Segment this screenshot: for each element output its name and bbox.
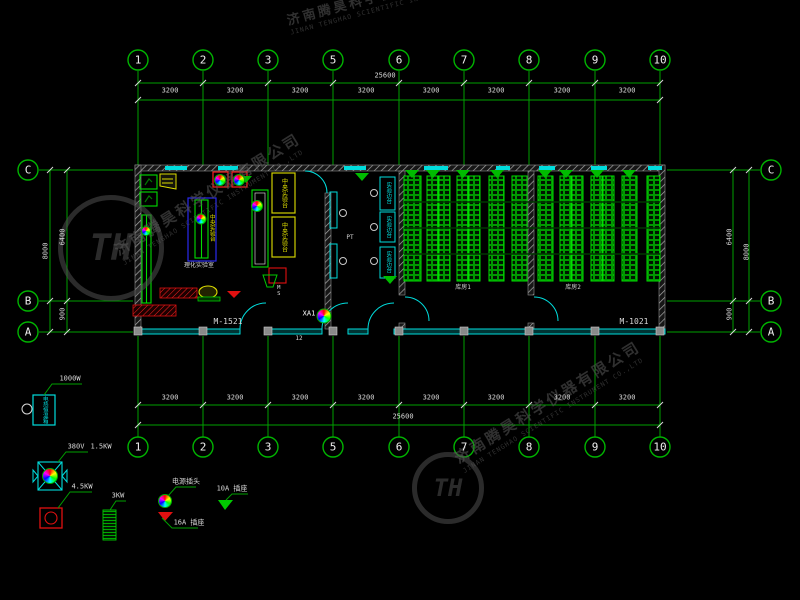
device-dial: [141, 226, 151, 236]
cad-drawing-canvas: TH TH 济南腾昊科学仪器有限公司 JINAN TENGHAO SCIENTI…: [0, 0, 800, 600]
legend-plug-dial: [158, 494, 172, 508]
grid-bubble-label: B: [25, 296, 32, 307]
dimension-label: 3200: [358, 395, 375, 402]
watermark-logo: TH: [412, 452, 484, 524]
bench-label: 中央实验台: [281, 222, 287, 252]
grid-bubble-label: 1: [135, 55, 142, 66]
dimension-label: 3200: [619, 395, 636, 402]
grid-bubble-label: B: [768, 296, 775, 307]
socket-symbol-red: [227, 291, 241, 298]
dimension-label: 6400: [727, 229, 734, 246]
dimension-total: 25600: [392, 414, 413, 421]
dimension-label: 3200: [619, 88, 636, 95]
leader-line: [110, 501, 126, 510]
grid-bubble-label: 3: [265, 442, 272, 453]
grid-bubble-label: 6: [396, 55, 403, 66]
dimension-label: 3200: [554, 395, 571, 402]
leader-line: [58, 452, 88, 462]
door-label: M-1521: [214, 318, 243, 326]
watermark-logo: TH: [58, 195, 164, 301]
dimension-label: 3200: [292, 88, 309, 95]
legend-label: 3KW: [112, 493, 125, 500]
legend-socket-16a: [158, 512, 173, 521]
grid-bubble-label: 9: [592, 442, 599, 453]
door-label: M-1021: [620, 318, 649, 326]
grid-bubble-label: A: [768, 327, 775, 338]
leader-line: [168, 487, 196, 496]
legend-label: 电源插头: [172, 479, 200, 486]
dimension-label: 3200: [162, 395, 179, 402]
building-walls: [134, 165, 665, 335]
dimension-label: 3200: [227, 88, 244, 95]
legend-label: 电热恒温箱: [41, 396, 47, 424]
room-label: PT: [346, 235, 353, 241]
room-label: 库房1: [455, 285, 471, 291]
panel-label: XA1: [303, 311, 316, 318]
grid-bubble-label: 7: [461, 442, 468, 453]
leader-line: [226, 494, 248, 500]
leader-line: [44, 384, 82, 395]
dimension-label: 900: [727, 308, 734, 321]
grid-bubble-label: 1: [135, 442, 142, 453]
distribution-box-dial: [317, 309, 332, 324]
bench-label: 实验边台: [385, 182, 391, 204]
dimension-label: 8000: [744, 244, 751, 261]
bench-label: 实验边台: [385, 251, 391, 273]
grid-bubble-label: 5: [330, 442, 337, 453]
room-label: MS: [275, 285, 281, 297]
tag-symbol: [160, 174, 176, 189]
legend-label: 10A 插座: [217, 486, 248, 493]
machine-symbol: [199, 286, 217, 298]
legend-transformer-dial: [42, 468, 58, 484]
radiator: [160, 288, 197, 298]
fume-hood: [140, 175, 157, 189]
bench-label: 中央实验台: [208, 214, 214, 242]
airflow-arrow-icon: [145, 179, 152, 202]
machine-base: [198, 297, 220, 301]
legend-red-unit-circle: [45, 512, 57, 524]
divider-wall-3: [528, 171, 534, 295]
grid-bubble-label: 10: [653, 55, 666, 66]
legend-label: 4.5KW: [71, 484, 92, 491]
grid-bubble-label: 3: [265, 55, 272, 66]
grid-bubble-label: C: [25, 165, 32, 176]
top-wall: [135, 165, 665, 171]
grid-bubble-label: 9: [592, 55, 599, 66]
dimension-label: 900: [60, 308, 67, 321]
grid-bubble-label: A: [25, 327, 32, 338]
leader-line: [58, 492, 92, 508]
dimension-label: 3200: [162, 88, 179, 95]
grid-bubble-label: 8: [526, 55, 533, 66]
dimension-label: 3200: [554, 88, 571, 95]
watermark-logo-text: TH: [434, 474, 463, 502]
dimension-label: 8000: [43, 243, 50, 260]
legend-label: 380V: [68, 444, 85, 451]
room-label: 库房2: [565, 285, 581, 291]
legend-red-unit: [40, 508, 62, 528]
fume-hood: [140, 192, 157, 206]
bench-label: 中央实验台: [281, 178, 287, 208]
dimension-label: 3200: [423, 395, 440, 402]
legend-circle: [22, 404, 32, 414]
dimension-label: 3200: [488, 395, 505, 402]
grid-bubble-label: 2: [200, 442, 207, 453]
legend-radiator: [103, 510, 116, 540]
dimension-label: 3200: [358, 88, 375, 95]
grid-bubble-label: 5: [330, 55, 337, 66]
legend-label: 16A 插座: [174, 520, 205, 527]
grid-bubble-label: 2: [200, 55, 207, 66]
dimension-total: 25600: [374, 73, 395, 80]
device-dial: [251, 200, 263, 212]
dimension-label: 6400: [60, 229, 67, 246]
legend-label: 1.5KW: [90, 444, 111, 451]
dimension-label: 3200: [292, 395, 309, 402]
legend-label: 1000W: [59, 376, 80, 383]
stools: [340, 190, 378, 265]
dimension-label: 3200: [423, 88, 440, 95]
legend-socket-10a: [218, 500, 233, 510]
dimension-label: 3200: [488, 88, 505, 95]
bench-label: 实验边台: [385, 216, 391, 238]
grid-bubble-label: 8: [526, 442, 533, 453]
device-dial: [233, 174, 245, 186]
room-label: 理化实验室: [184, 263, 214, 269]
note-label: 12: [295, 336, 302, 342]
grid-bubble-label: 7: [461, 55, 468, 66]
device-dial: [196, 214, 207, 225]
device-dial: [214, 174, 226, 186]
grid-bubble-label: C: [768, 165, 775, 176]
watermark-logo-text: TH: [89, 228, 132, 269]
grid-bubble-label: 10: [653, 442, 666, 453]
grid-bubble-label: 6: [396, 442, 403, 453]
dimension-label: 3200: [227, 395, 244, 402]
radiator: [133, 305, 176, 316]
